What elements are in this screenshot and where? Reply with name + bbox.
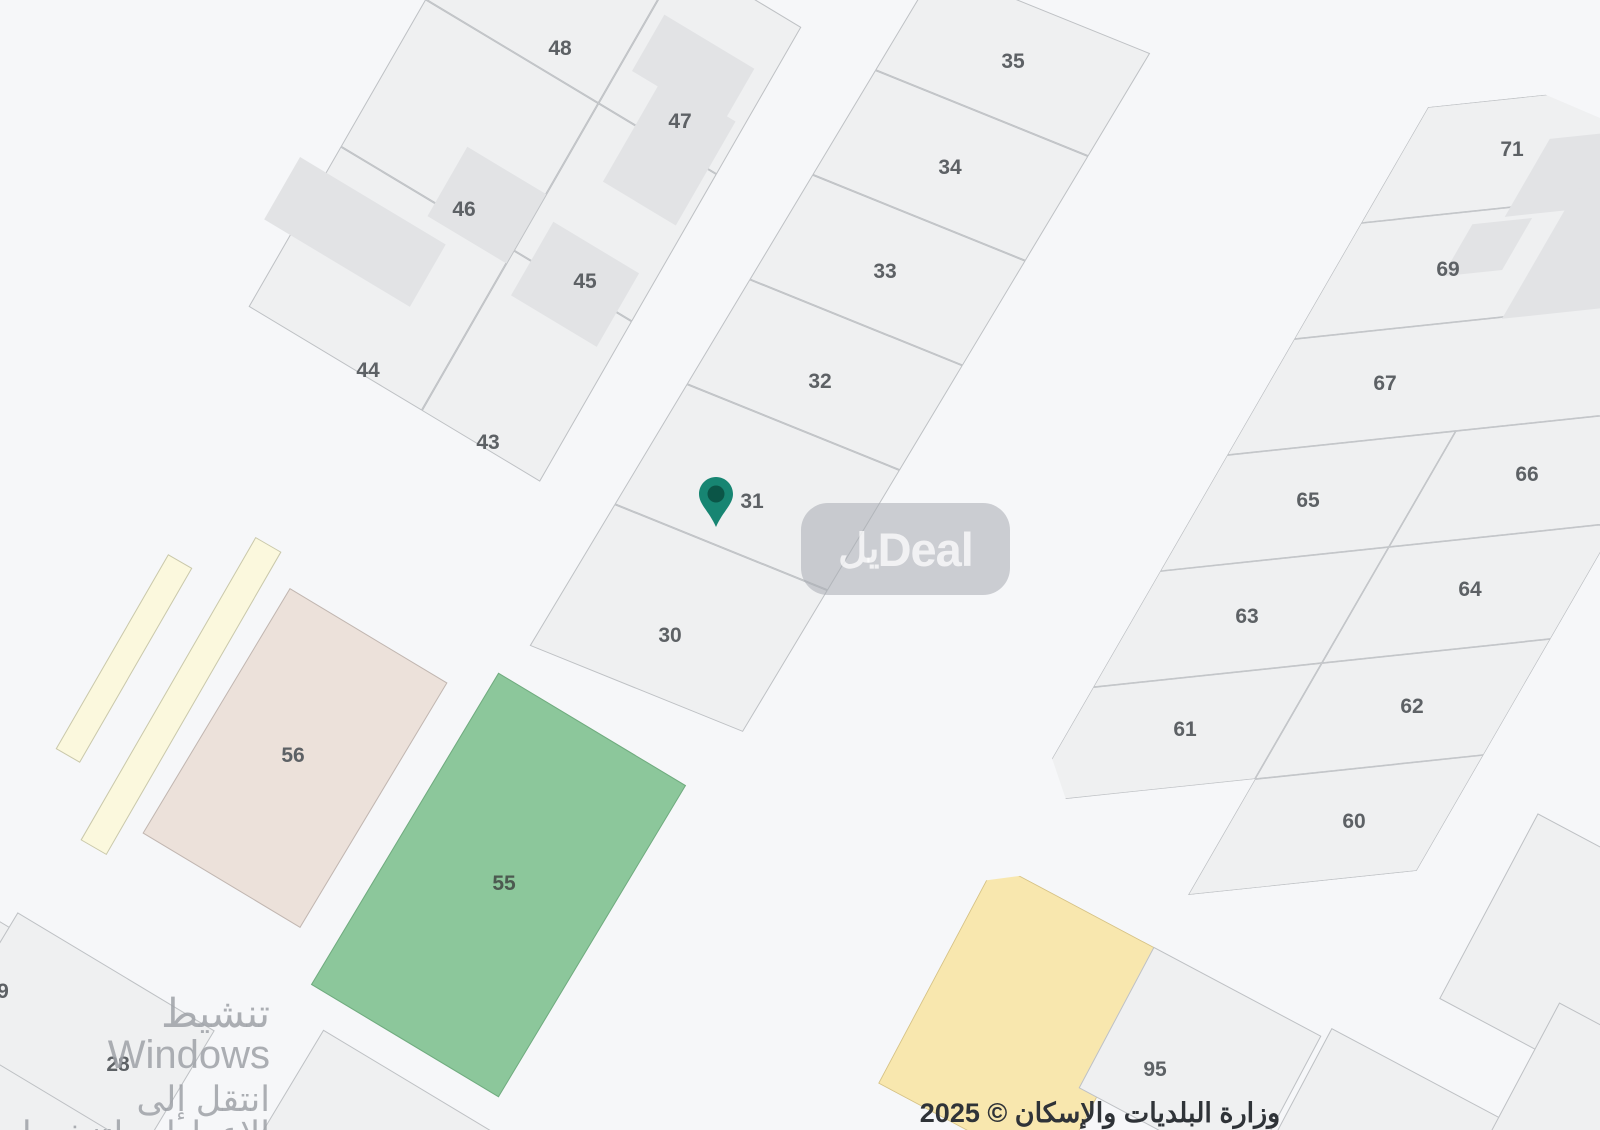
location-pin-icon[interactable] bbox=[696, 476, 736, 528]
parcel-label-67: 67 bbox=[1373, 372, 1396, 396]
parcel-label-46: 46 bbox=[452, 198, 475, 222]
windows-activation-watermark: تنشيط Windows انتقل إلى الإعدادات لتنشيط bbox=[0, 994, 270, 1130]
parcel-label-33: 33 bbox=[873, 260, 896, 284]
parcel-label-34: 34 bbox=[938, 156, 961, 180]
parcel-label-64: 64 bbox=[1458, 578, 1481, 602]
parcel-label-35: 35 bbox=[1001, 50, 1024, 74]
windows-activation-line2: انتقل إلى الإعدادات لتنشيط bbox=[0, 1082, 270, 1130]
parcel-label-61: 61 bbox=[1173, 718, 1196, 742]
parcel-label-30: 30 bbox=[658, 624, 681, 648]
parcel-label-45: 45 bbox=[573, 270, 596, 294]
deal-watermark-arabic: يل bbox=[838, 526, 879, 572]
parcel-label-65: 65 bbox=[1296, 489, 1319, 513]
parcel-label-71: 71 bbox=[1500, 138, 1523, 162]
parcel-label-44: 44 bbox=[356, 359, 379, 383]
parcel-label-62: 62 bbox=[1400, 695, 1423, 719]
parcel-label-31: 31 bbox=[740, 490, 763, 514]
parcel-label-43: 43 bbox=[476, 431, 499, 455]
deal-watermark: يلDeal bbox=[801, 503, 1010, 595]
windows-activation-line1: تنشيط Windows bbox=[0, 994, 270, 1076]
parcel-label-60: 60 bbox=[1342, 810, 1365, 834]
parcel-label-66: 66 bbox=[1515, 463, 1538, 487]
parcel-label-95: 95 bbox=[1143, 1058, 1166, 1082]
parcel-label-32: 32 bbox=[808, 370, 831, 394]
parcel-label-56: 56 bbox=[281, 744, 304, 768]
map-attribution: وزارة البلديات والإسكان © 2025 bbox=[900, 1098, 1300, 1129]
deal-watermark-latin: Deal bbox=[878, 522, 973, 577]
parcel-label-63: 63 bbox=[1235, 605, 1258, 629]
map-canvas[interactable]: 48 47 46 45 44 43 35 34 33 32 31 30 71 6… bbox=[0, 0, 1600, 1130]
parcel-label-48: 48 bbox=[548, 37, 571, 61]
parcel-label-47: 47 bbox=[668, 110, 691, 134]
parcel-label-69: 69 bbox=[1436, 258, 1459, 282]
parcel-label-55: 55 bbox=[492, 872, 515, 896]
